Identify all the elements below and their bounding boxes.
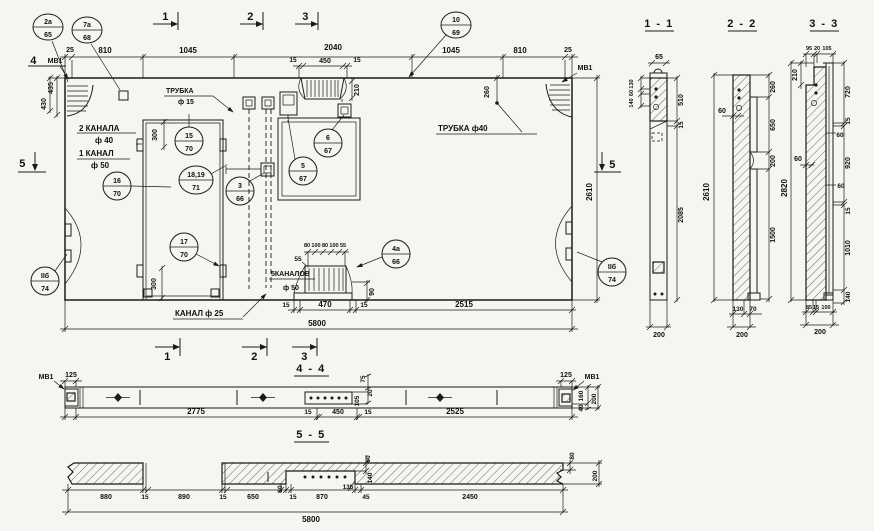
dim-label: 5800 [308, 319, 326, 328]
callout-2a-65: 2а 65 [33, 14, 68, 82]
edge-arc-right [556, 206, 573, 282]
leader-line [409, 35, 446, 77]
dim-label: 15 [813, 305, 819, 311]
dim-label: 450 [319, 58, 331, 65]
leader-line [288, 118, 295, 159]
channel-dot [312, 476, 315, 479]
callout-top: 18,19 [187, 172, 205, 179]
dim-label: 1045 [179, 46, 197, 55]
dim-label: 140 [845, 291, 852, 302]
dim-label: 2525 [446, 407, 464, 416]
dim-label: 55 [340, 243, 346, 249]
mark-label: 3 [302, 11, 310, 23]
dim-label: 60 [718, 108, 726, 115]
mark-label: 3 [301, 351, 309, 363]
section-5-5: 5 - 5 60 140 80 200 880 15 890 15 650 60… [62, 429, 602, 524]
dim-label: 80 [304, 243, 310, 249]
section-mark-3-bottom: 3 [292, 338, 317, 363]
dim-label: 2820 [780, 179, 789, 197]
label-5kanalov: 5КАНАЛОВ [271, 271, 310, 278]
dim-label: 5800 [302, 515, 320, 524]
dim-label: 15 [304, 409, 312, 416]
flange-lower [750, 169, 757, 293]
dim-label: 435 [48, 82, 55, 94]
section-3-3: 3 - 3 95 20 105 210 60 2820 720 15 920 1… [780, 18, 852, 336]
callout-1819-71: 18,19 71 [179, 166, 225, 194]
channel-dot [331, 397, 334, 400]
rebar-dot [814, 91, 817, 94]
section-mark-5-right: 5 [594, 152, 621, 172]
dim-label: 15 [141, 494, 149, 501]
dim-label: 130 [733, 306, 744, 313]
dim-label: 60 [794, 156, 802, 163]
dim-label: 510 [678, 94, 685, 106]
section-2-2: 2 - 2 60 2610 260 650 200 1500 130 70 20… [702, 18, 777, 339]
callout-bottom: 67 [324, 148, 332, 155]
dim-label: 1045 [442, 46, 460, 55]
callout-top: 6 [326, 135, 330, 142]
channel-dot [324, 397, 327, 400]
dim-line-435 [48, 75, 65, 118]
flange-upper [750, 97, 757, 152]
leader-line [196, 254, 219, 266]
dim-label: 125 [65, 372, 77, 379]
mark-arrow [32, 164, 38, 171]
callout-top: 15 [185, 133, 193, 140]
tube-run [226, 164, 261, 174]
dim-line-bottom2 [62, 493, 568, 515]
band-piece-left [68, 463, 143, 484]
callout-16-70: 16 70 [103, 172, 171, 200]
edge-notch [65, 224, 71, 236]
dim-label: 210 [354, 84, 361, 96]
section-title: 4 - 4 [296, 363, 326, 375]
dim-label: 90 [369, 288, 376, 296]
callout-bottom: 69 [452, 30, 460, 37]
dim-label: 200 [653, 332, 665, 339]
dim-line-125l [60, 378, 82, 387]
dim-label: 80 [569, 452, 576, 460]
dim-label: 2610 [702, 183, 711, 201]
channel-dot [320, 476, 323, 479]
dim-label: 60 [837, 183, 845, 190]
mark-arrow [173, 344, 180, 350]
dim-label: 200 [592, 470, 599, 481]
dim-line-125r [556, 378, 576, 387]
junction-box [338, 104, 351, 117]
mark-label: 2 [247, 11, 255, 23]
callout-top: IIб [41, 272, 50, 280]
dim-label: 15 [845, 117, 852, 125]
mark-label: 4 [30, 55, 38, 67]
channel-dot [336, 476, 339, 479]
dim-label: 2610 [585, 183, 594, 201]
dashed-insert [652, 133, 662, 141]
channel-dot [317, 397, 320, 400]
dim-label: 2515 [455, 300, 473, 309]
dim-label: 470 [318, 300, 332, 309]
door-jamb-outer [143, 120, 223, 300]
dim-line-right [667, 75, 680, 303]
mark-label: МВ1 [39, 374, 54, 381]
dim-label: 55 [294, 256, 302, 263]
callout-top: 7а [83, 22, 91, 29]
door-jamb-inner [146, 123, 220, 300]
bundle-arcs [299, 78, 347, 99]
joint-lines [80, 387, 83, 408]
edge-notch [566, 222, 572, 234]
callout-top: 10 [452, 17, 460, 24]
channel-dot [328, 476, 331, 479]
rebar-dot [654, 293, 657, 296]
dim-line-260 [494, 75, 500, 103]
label-2kanala-dia: ф 40 [95, 136, 114, 145]
rebar-dot [654, 95, 657, 98]
dim-label: 25 [564, 47, 572, 54]
panel-outline [65, 78, 572, 300]
callout-top: 5 [301, 163, 305, 170]
callout-4a-66: 4а 66 [357, 240, 410, 268]
dim-label: 920 [845, 157, 852, 169]
callout-bottom: 66 [236, 196, 244, 203]
channel-dot [304, 476, 307, 479]
device-box-inner [283, 95, 294, 105]
anchor-insert [67, 393, 75, 401]
mark-arrow [256, 21, 263, 27]
dim-line-channels [304, 249, 349, 266]
label-kanal25: КАНАЛ ф 25 [175, 309, 224, 318]
dim-label: 85 [806, 305, 812, 311]
dim-label: 650 [247, 494, 259, 501]
leader-line [54, 381, 64, 389]
dim-label: 650 [770, 119, 777, 131]
mark-label: МВ1 [578, 65, 593, 72]
edge-arc-left [65, 208, 81, 284]
label-1kanal: 1 КАНАЛ [79, 149, 114, 158]
dim-label: 1010 [845, 240, 852, 256]
mark-lines [594, 152, 621, 172]
drawing-sheet: 25 810 1045 2040 1045 810 25 450 15 15 2… [0, 0, 874, 531]
dim-label: 15 [360, 302, 368, 309]
rebar-dot [814, 83, 817, 86]
hatched-insert [653, 262, 664, 273]
wedge-line [650, 121, 667, 129]
section-1-1: 1 - 1 65 130 60 140 510 15 2085 200 [629, 18, 685, 339]
dim-label: 15 [289, 494, 297, 501]
dim-label: 15 [845, 207, 852, 215]
rebar-dot [737, 96, 740, 99]
dim-label: 200 [770, 155, 777, 167]
dim-label: 70 [749, 306, 757, 313]
mark-arrow [171, 21, 178, 27]
callout-top: IIб [608, 263, 617, 271]
dim-label: 25 [66, 47, 74, 54]
dim-label: 15 [282, 302, 290, 309]
leader-line [250, 173, 264, 181]
dim-label: 430 [41, 98, 48, 110]
dim-label: 100 [329, 243, 338, 249]
leader-line [573, 381, 584, 390]
anchor-insert [562, 394, 570, 402]
callout-bottom: 70 [185, 146, 193, 153]
leader-line [243, 294, 266, 317]
junction-box [262, 97, 274, 109]
callout-bottom: 70 [113, 191, 121, 198]
dim-label: 15 [219, 494, 227, 501]
junction-box [243, 97, 255, 109]
label-1kanal-dia: ф 50 [91, 161, 110, 170]
dim-label: 260 [484, 86, 491, 98]
door-opening [137, 120, 226, 300]
section-title: 2 - 2 [727, 18, 757, 30]
dim-label: 450 [332, 409, 344, 416]
callout-bottom: 65 [44, 32, 52, 39]
dim-label: 60 [629, 90, 635, 96]
junction-box-inner [341, 107, 348, 114]
dim-label: 880 [100, 494, 112, 501]
joint-lines [554, 387, 557, 408]
dim-label: 200 [736, 332, 748, 339]
rebar-dot [654, 87, 657, 90]
dim-line-300t [161, 119, 167, 150]
label-trubka15: ТРУБКА [166, 88, 194, 95]
hatched-zone [650, 78, 667, 121]
mark-label: 1 [164, 351, 172, 363]
dim-label: 15 [289, 57, 297, 64]
callout-bottom: 74 [41, 286, 49, 293]
dim-label: 720 [845, 86, 852, 98]
rebar-dot [661, 293, 664, 296]
dim-label: 45 [362, 494, 370, 501]
dim-label: 140 [629, 98, 635, 107]
dim-label: 260 [770, 81, 777, 93]
label-trubka40: ТРУБКА ф40 [438, 124, 488, 133]
dim-label: 1500 [770, 227, 777, 243]
callout-bottom: 70 [180, 252, 188, 259]
dim-line-right [750, 72, 772, 302]
callout-bottom: 66 [392, 259, 400, 266]
band-piece-right [222, 463, 563, 484]
dim-label: 80 [322, 243, 328, 249]
square-opening-inner [282, 122, 356, 196]
callout-7a-68: 7а 68 [72, 17, 120, 90]
callout-bottom: 74 [608, 277, 616, 284]
embed-plate [119, 91, 128, 100]
callout-top: 17 [180, 239, 188, 246]
dim-line-bottom [646, 300, 671, 330]
callout-bottom: 67 [299, 176, 307, 183]
dim-label: 60 [277, 485, 284, 493]
channel-dot [345, 397, 348, 400]
top-channel-bundle [299, 78, 347, 99]
dim-label: 100 [821, 305, 830, 311]
mark-label: 2 [251, 351, 259, 363]
callout-17-70: 17 70 [170, 233, 219, 266]
channel-exit [137, 139, 143, 151]
callout-top: 4а [392, 246, 400, 253]
leader-line [131, 186, 171, 187]
mark-label: МВ1 [585, 374, 600, 381]
mark-arrow [599, 164, 605, 171]
dim-line-450 [293, 63, 352, 78]
dim-label: 810 [98, 46, 112, 55]
section-title: 1 - 1 [644, 18, 674, 30]
callout-IIb-74-right: IIб 74 [577, 252, 626, 286]
callout-6-67: 6 67 [314, 115, 344, 157]
label-trubka15-dia: ф 15 [178, 99, 194, 106]
callout-3-66: 3 66 [226, 173, 264, 205]
channel-dot [338, 397, 341, 400]
junction-box-inner [246, 100, 252, 106]
dim-label: 105 [822, 46, 831, 52]
dim-label: 15 [353, 57, 361, 64]
section-mark-3-top: 3 [295, 11, 318, 30]
bundle-body [305, 266, 346, 293]
leader-line [357, 257, 382, 267]
dim-label: 2450 [462, 494, 478, 501]
label-2kanala: 2 КАНАЛА [79, 124, 120, 133]
dim-label: 300 [152, 129, 159, 141]
channel-dot [344, 476, 347, 479]
section-mark-2-bottom: 2 [242, 338, 267, 363]
callout-top: 16 [113, 178, 121, 185]
dim-label: 65 [655, 54, 663, 61]
device-box [280, 92, 297, 115]
dim-label: 210 [792, 69, 799, 81]
callout-top: 2а [44, 19, 52, 26]
dim-line-bottom2 [800, 312, 839, 328]
dim-line-bottom [60, 408, 578, 420]
dim-line-300b [159, 265, 165, 301]
flange-strip [826, 63, 833, 295]
dim-label: 15 [364, 409, 372, 416]
dim-label: 95 [806, 46, 812, 52]
bundle-plinth [294, 293, 352, 300]
channel-dot [310, 397, 313, 400]
callout-IIb-74-left: IIб 74 [31, 254, 67, 295]
dim-label: 2775 [187, 407, 205, 416]
dim-label: 140 [367, 472, 374, 483]
dim-label: 200 [591, 393, 598, 404]
dim-label: 200 [814, 329, 826, 336]
callout-5-67: 5 67 [288, 118, 317, 185]
mark-arrow [311, 21, 318, 27]
dim-label: 810 [513, 46, 527, 55]
section-title: 3 - 3 [809, 18, 839, 30]
mark-label: 5 [609, 159, 617, 171]
section-mark-1-bottom: 1 [155, 338, 180, 363]
dim-label: 130 [629, 79, 635, 88]
junction-box [261, 163, 274, 176]
junction-box-inner [264, 166, 271, 173]
plan-view: 25 810 1045 2040 1045 810 25 450 15 15 2… [18, 11, 626, 363]
mark-label: 1 [162, 11, 170, 23]
bundle-lines [307, 80, 338, 97]
dim-label: 2085 [678, 207, 685, 223]
leader-line [213, 96, 233, 112]
dim-label: 15 [678, 121, 685, 129]
mark-label: 5 [19, 158, 27, 170]
section-mark-1-top: 1 [153, 11, 178, 30]
callout-bottom: 68 [83, 35, 91, 42]
corner-hatch-top-right [549, 85, 570, 110]
dim-line-2610 [711, 72, 733, 303]
dim-label: 105 [354, 395, 361, 406]
dim-label: 870 [316, 494, 328, 501]
section-title: 5 - 5 [296, 429, 326, 441]
section-mark-5-left: 5 [18, 152, 46, 172]
bundle-lines [309, 268, 343, 291]
dim-label: 890 [178, 494, 190, 501]
junction-box-inner [265, 100, 271, 106]
rebar-dot [737, 88, 740, 91]
dim-label: 160 [578, 390, 585, 401]
leader-line [577, 252, 602, 262]
dim-line-top [803, 51, 836, 67]
dim-label: 2040 [324, 43, 342, 52]
dim-label: 60 [836, 132, 844, 139]
dim-label: 300 [151, 278, 158, 290]
bundle-body [301, 78, 344, 99]
dim-label: 125 [560, 372, 572, 379]
section-4-4: 4 - 4 МВ1 125 МВ1 125 75 20 105 160 40 2… [39, 363, 601, 420]
label-5kanalov-dia: ф 50 [283, 285, 299, 292]
mark-arrow [260, 344, 267, 350]
callout-10-69: 10 69 [409, 12, 471, 77]
edge-notch [566, 248, 572, 260]
mark-arrow [310, 344, 317, 350]
corner-arc-top-right [546, 84, 572, 117]
lifting-loop [654, 69, 662, 73]
channel-exit [137, 265, 143, 277]
dim-line-left [638, 75, 650, 109]
dim-label: 60 [365, 455, 372, 463]
section-mark-2-top: 2 [240, 11, 263, 30]
dim-label: 100 [311, 243, 320, 249]
callout-bottom: 71 [192, 185, 200, 192]
callout-top: 3 [238, 183, 242, 190]
dim-label: 40 [578, 404, 585, 412]
dim-label: 20 [814, 46, 820, 52]
panel-drawing: 25 810 1045 2040 1045 810 25 450 15 15 2… [0, 0, 874, 531]
